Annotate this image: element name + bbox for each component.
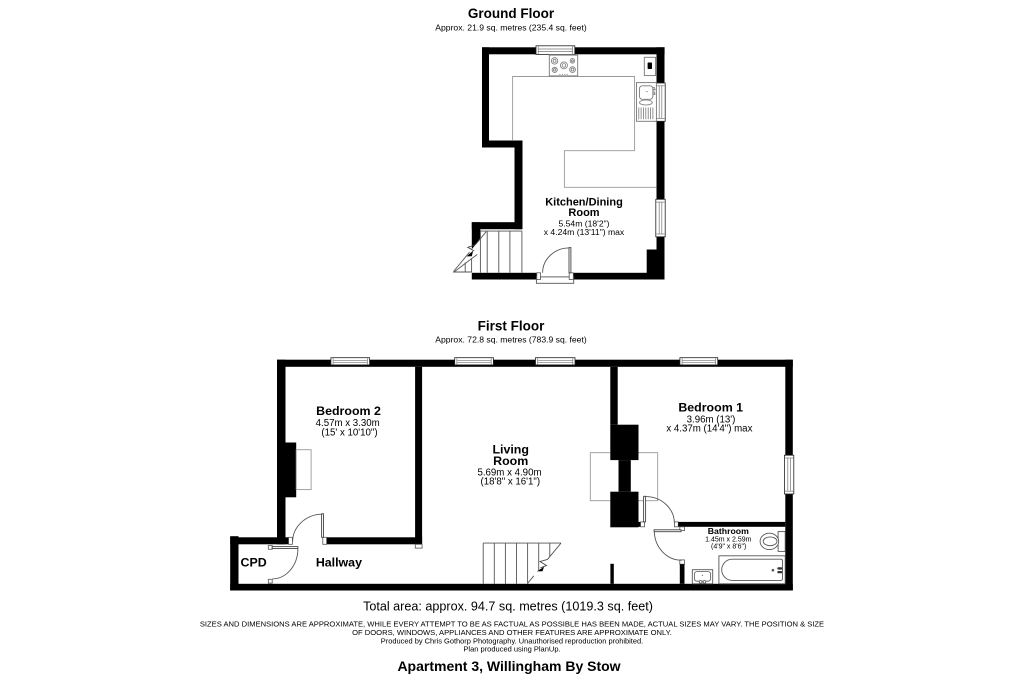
svg-text:(15' x 10'10"): (15' x 10'10"): [321, 427, 377, 438]
svg-text:Approx. 21.9 sq. metres (235.4: Approx. 21.9 sq. metres (235.4 sq. feet): [435, 23, 587, 33]
svg-text:Total area: approx. 94.7 sq. m: Total area: approx. 94.7 sq. metres (101…: [363, 599, 653, 613]
svg-text:Room: Room: [493, 454, 528, 468]
svg-text:(18'8" x 16'1"): (18'8" x 16'1"): [481, 477, 541, 488]
svg-text:B: B: [648, 64, 652, 70]
svg-text:Approx. 72.8 sq. metres (783.9: Approx. 72.8 sq. metres (783.9 sq. feet): [435, 334, 587, 344]
svg-text:Bedroom 2: Bedroom 2: [316, 404, 381, 418]
svg-text:Room: Room: [568, 207, 599, 219]
svg-text:x 4.37m (14'4") max: x 4.37m (14'4") max: [666, 424, 752, 435]
svg-text:Bedroom 1: Bedroom 1: [678, 400, 743, 414]
svg-text:Plan produced using PlanUp.: Plan produced using PlanUp.: [463, 645, 560, 654]
svg-text:Bathroom: Bathroom: [708, 526, 749, 536]
svg-text:First Floor: First Floor: [478, 319, 545, 334]
svg-text:CPD: CPD: [241, 556, 267, 570]
svg-text:x 4.24m (13'11") max: x 4.24m (13'11") max: [544, 227, 625, 237]
svg-text:1.45m x 2.59m: 1.45m x 2.59m: [705, 537, 751, 544]
svg-text:Apartment 3, Willingham By Sto: Apartment 3, Willingham By Stow: [397, 658, 620, 674]
svg-text:Hallway: Hallway: [316, 556, 362, 570]
svg-text:Ground Floor: Ground Floor: [468, 6, 555, 21]
svg-text:(4'9" x 8'6"): (4'9" x 8'6"): [711, 544, 746, 551]
